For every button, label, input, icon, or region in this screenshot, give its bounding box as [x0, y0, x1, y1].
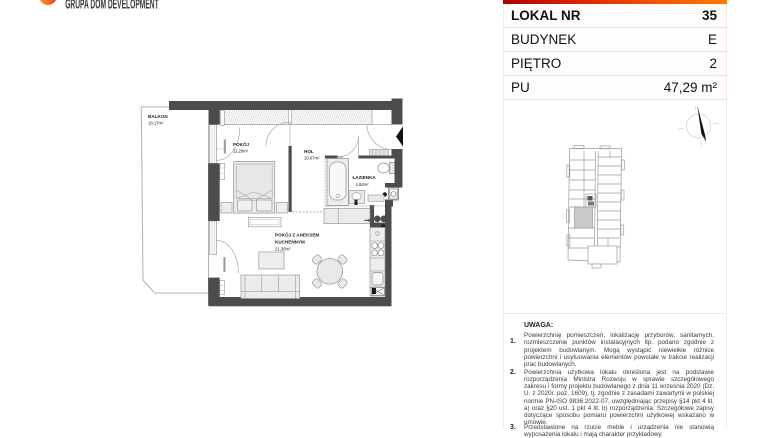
svg-text:POKÓJ: POKÓJ: [233, 140, 250, 147]
svg-text:ŁAZIENKA: ŁAZIENKA: [353, 175, 377, 180]
svg-text:POKÓJ Z ANEKSEM: POKÓJ Z ANEKSEM: [275, 231, 319, 238]
svg-text:4,84m²: 4,84m²: [356, 182, 370, 187]
svg-text:18,17m²: 18,17m²: [148, 121, 164, 126]
svg-text:11,28m²: 11,28m²: [233, 149, 249, 154]
svg-text:HOL: HOL: [304, 149, 314, 154]
svg-text:BALKON: BALKON: [148, 114, 168, 119]
svg-text:10,07m²: 10,07m²: [304, 156, 320, 161]
svg-text:KUCHENNYM: KUCHENNYM: [275, 240, 305, 245]
svg-text:21,30m²: 21,30m²: [275, 247, 291, 252]
